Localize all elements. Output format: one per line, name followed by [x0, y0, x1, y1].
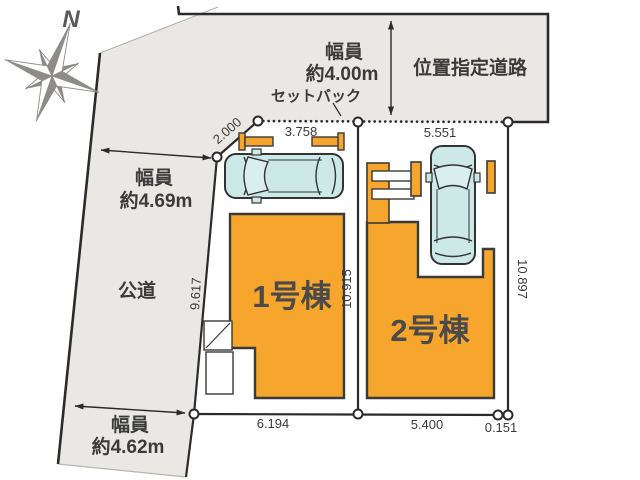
building-1-label: 1号棟 — [252, 279, 332, 314]
dim-lot1-top: 3.758 — [285, 124, 318, 139]
car-2-icon — [426, 146, 480, 264]
dim-lot2-bottom: 5.400 — [411, 417, 444, 432]
road-left-name-label: 公道 — [118, 279, 156, 302]
building-2-label: 2号棟 — [390, 313, 470, 348]
dim-lot2-right: 10.897 — [515, 259, 530, 299]
site-plan: 3.758 5.551 6.194 5.400 0.151 2.000 9.61… — [0, 0, 640, 480]
dim-lot1-bottom: 6.194 — [257, 416, 290, 431]
dim-lot-between: 10.915 — [339, 269, 354, 309]
road-top-width-label-2: 約4.00m — [306, 62, 379, 85]
dim-lot2-top: 5.551 — [424, 125, 457, 140]
road-left-width-label-2: 約4.69m — [120, 189, 193, 212]
road-top-width-label-1: 幅員 — [325, 40, 363, 63]
road-bottom-width-label-2: 約4.62m — [92, 435, 165, 458]
road-left-width-label-1: 幅員 — [135, 166, 173, 189]
building-1-approach — [204, 321, 233, 394]
dim-lot2-offset: 0.151 — [485, 420, 518, 435]
car-1-icon — [225, 149, 343, 203]
setback-label: セットバック — [271, 88, 361, 105]
north-label: N — [62, 6, 80, 33]
dim-lot1-left: 9.617 — [187, 277, 204, 310]
site-plan-drawing: 3.758 5.551 6.194 5.400 0.151 2.000 9.61… — [0, 0, 640, 480]
road-top-name-label: 位置指定道路 — [413, 56, 528, 79]
road-bottom-width-label-1: 幅員 — [111, 413, 149, 436]
lots-bottom-boundary — [194, 414, 508, 415]
